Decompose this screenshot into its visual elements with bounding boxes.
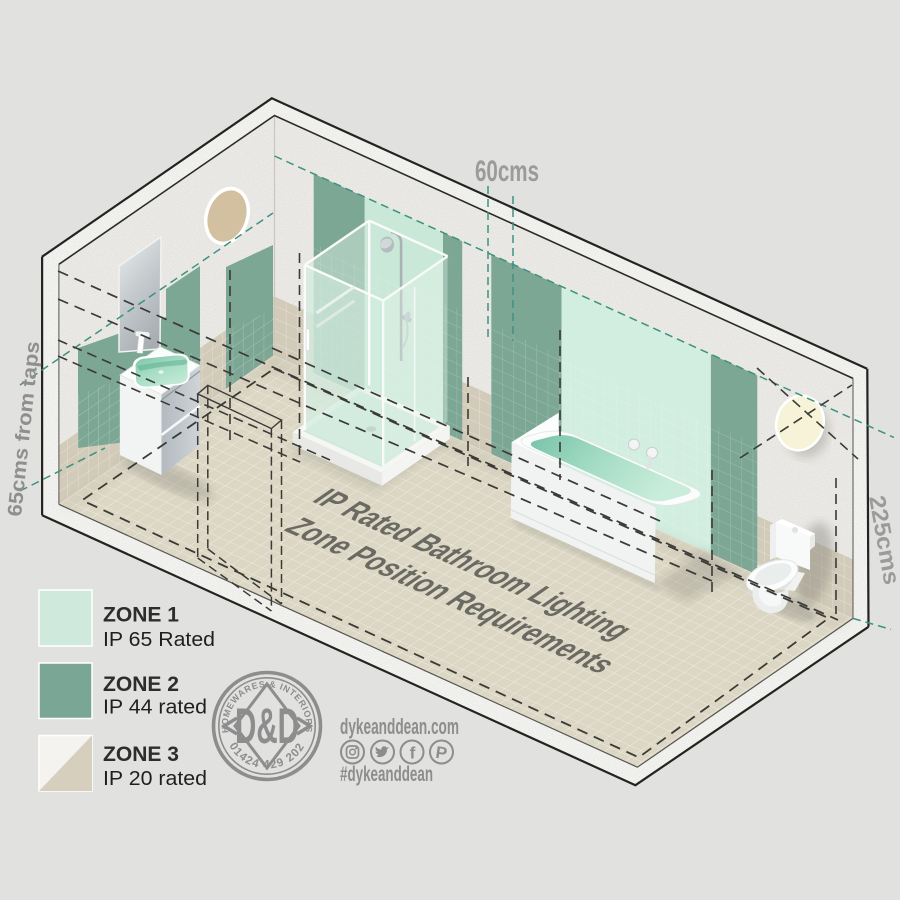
svg-text:ZONE 2: ZONE 2 [103,672,179,696]
svg-text:60cms: 60cms [475,155,539,188]
svg-text:#dykeanddean: #dykeanddean [340,763,433,786]
svg-text:D&D: D&D [235,698,299,754]
svg-text:IP 20 rated: IP 20 rated [103,768,207,790]
svg-text:ZONE 3: ZONE 3 [103,742,179,766]
svg-text:ZONE 1: ZONE 1 [103,603,179,627]
svg-text:f: f [410,744,416,763]
svg-text:IP 44 rated: IP 44 rated [103,697,207,719]
svg-text:dykeanddean.com: dykeanddean.com [340,714,459,739]
svg-text:IP 65 Rated: IP 65 Rated [103,629,215,651]
